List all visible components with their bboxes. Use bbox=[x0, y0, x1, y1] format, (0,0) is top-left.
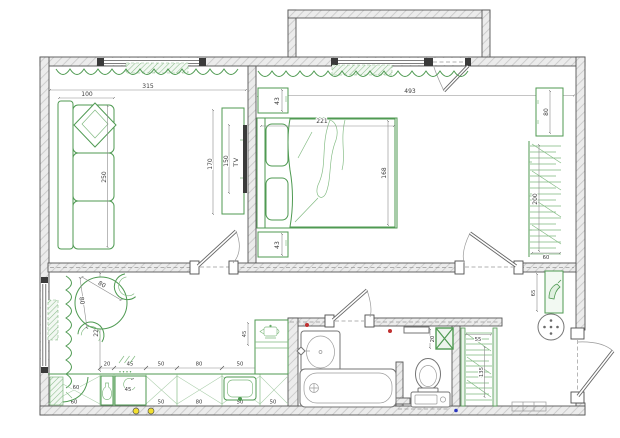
kitchen-sink bbox=[224, 377, 256, 400]
hanging-clothes-diagonals bbox=[467, 334, 491, 397]
dim-tv-zone: 170 bbox=[207, 158, 214, 170]
corner-block bbox=[50, 377, 63, 405]
dim-shelf: 20 bbox=[430, 335, 436, 342]
floor-plan: 315 100 250 170 150 TV 493 43 43 221 168 bbox=[0, 0, 620, 433]
oven-label: 45 bbox=[125, 387, 132, 393]
dim-nightstand-bottom: 43 bbox=[274, 241, 281, 249]
dim-corner-unit: 60 bbox=[73, 385, 80, 391]
radiator-kitchen bbox=[48, 300, 58, 340]
dim-bed-depth: 168 bbox=[381, 167, 388, 179]
dim-living-width: 315 bbox=[142, 83, 154, 90]
side-counter-top bbox=[255, 320, 288, 374]
dim-tv-width: 150 bbox=[223, 155, 230, 167]
oven-dots bbox=[119, 371, 131, 372]
tv-label: TV bbox=[232, 157, 240, 167]
dim-wardrobe-length: 200 bbox=[532, 193, 539, 205]
bed-pillow bbox=[266, 124, 288, 166]
bedroom-window bbox=[331, 58, 431, 66]
kitchen-counter: 20 45 50 80 50 60 45 50 80 50 50 60 45 bbox=[48, 356, 288, 414]
balcony-wall-top bbox=[288, 10, 490, 18]
radiator-living bbox=[126, 63, 188, 73]
hall-closet: 55 135 bbox=[461, 328, 497, 406]
wall-living-bedroom bbox=[248, 66, 256, 263]
dim-sofa-depth: 100 bbox=[81, 91, 93, 98]
entry-door bbox=[571, 328, 613, 403]
bathroom bbox=[297, 323, 396, 407]
vent-x-icon bbox=[436, 328, 453, 349]
bed-blanket bbox=[288, 119, 395, 227]
gas-point-dot bbox=[133, 408, 139, 414]
dim-cab: 50 bbox=[270, 400, 277, 406]
bathtub bbox=[300, 369, 396, 407]
dim-closet-length: 135 bbox=[479, 367, 485, 377]
bathroom-door bbox=[325, 290, 374, 327]
hallway: 55 135 65 bbox=[461, 271, 564, 411]
washbasin bbox=[297, 331, 340, 372]
balcony-door bbox=[427, 58, 471, 91]
faucet-icon bbox=[238, 397, 242, 401]
wall-wc-stub bbox=[396, 398, 410, 404]
light-point-dot bbox=[388, 329, 392, 333]
toilet bbox=[411, 359, 450, 408]
radiator-bedroom bbox=[332, 65, 392, 75]
sofa-back bbox=[58, 101, 73, 249]
dim-cab: 80 bbox=[196, 362, 203, 368]
shoe-shelf bbox=[545, 271, 563, 313]
dim-cab: 80 bbox=[196, 400, 203, 406]
dim-table-clearance: 80 bbox=[77, 296, 85, 305]
floor-plan-drawing: 315 100 250 170 150 TV 493 43 43 221 168 bbox=[0, 0, 620, 433]
dim-cab: 50 bbox=[158, 362, 165, 368]
dim-cab: 50 bbox=[237, 362, 244, 368]
side-counter: 45 bbox=[242, 320, 288, 374]
dim-nightstand-top: 43 bbox=[274, 97, 281, 105]
balcony-wall-right bbox=[482, 10, 490, 57]
water-point-dot bbox=[454, 409, 458, 413]
pouf bbox=[538, 314, 564, 340]
kitchen: 222 80 80 20 45 50 80 50 60 45 50 80 50 bbox=[48, 273, 288, 414]
sofa-cushion bbox=[73, 201, 114, 249]
wardrobe: 200 60 bbox=[529, 141, 561, 261]
dim-bed-width: 221 bbox=[316, 118, 328, 125]
light-point-dot bbox=[305, 323, 309, 327]
nightstand-bottom bbox=[258, 232, 288, 257]
wall-right-upper bbox=[576, 57, 585, 330]
wc: 20 bbox=[404, 327, 458, 412]
wall-shelf bbox=[404, 327, 429, 333]
dim-cab: 45 bbox=[127, 362, 134, 368]
dim-shoe-shelf: 65 bbox=[531, 290, 537, 297]
dim-bedroom-width: 493 bbox=[404, 88, 416, 95]
nightstand-top bbox=[258, 88, 288, 113]
bedroom: 493 43 43 221 168 80 200 60 bbox=[257, 88, 574, 261]
living-room-door bbox=[190, 231, 239, 274]
dim-cab: 50 bbox=[158, 400, 165, 406]
tv-icon bbox=[243, 125, 247, 193]
kitchen-window bbox=[41, 277, 48, 373]
curtain-kitchen bbox=[66, 276, 72, 388]
dim-sofa-length: 250 bbox=[101, 171, 108, 183]
dim-wardrobe-depth: 60 bbox=[543, 255, 550, 261]
bed-headboard bbox=[257, 118, 265, 228]
dim-cab: 20 bbox=[104, 362, 111, 368]
dim-closet-width: 55 bbox=[475, 337, 482, 343]
gas-point-dot bbox=[148, 408, 154, 414]
living-room: 315 100 250 170 150 TV bbox=[50, 83, 247, 249]
wall-kitchen-bath bbox=[288, 318, 298, 406]
dim-side-counter: 45 bbox=[242, 331, 248, 338]
bed-pillow bbox=[266, 178, 288, 220]
dim-dresser: 80 bbox=[543, 108, 550, 116]
hanging-clothes bbox=[466, 333, 492, 400]
bedroom-door bbox=[455, 233, 523, 274]
